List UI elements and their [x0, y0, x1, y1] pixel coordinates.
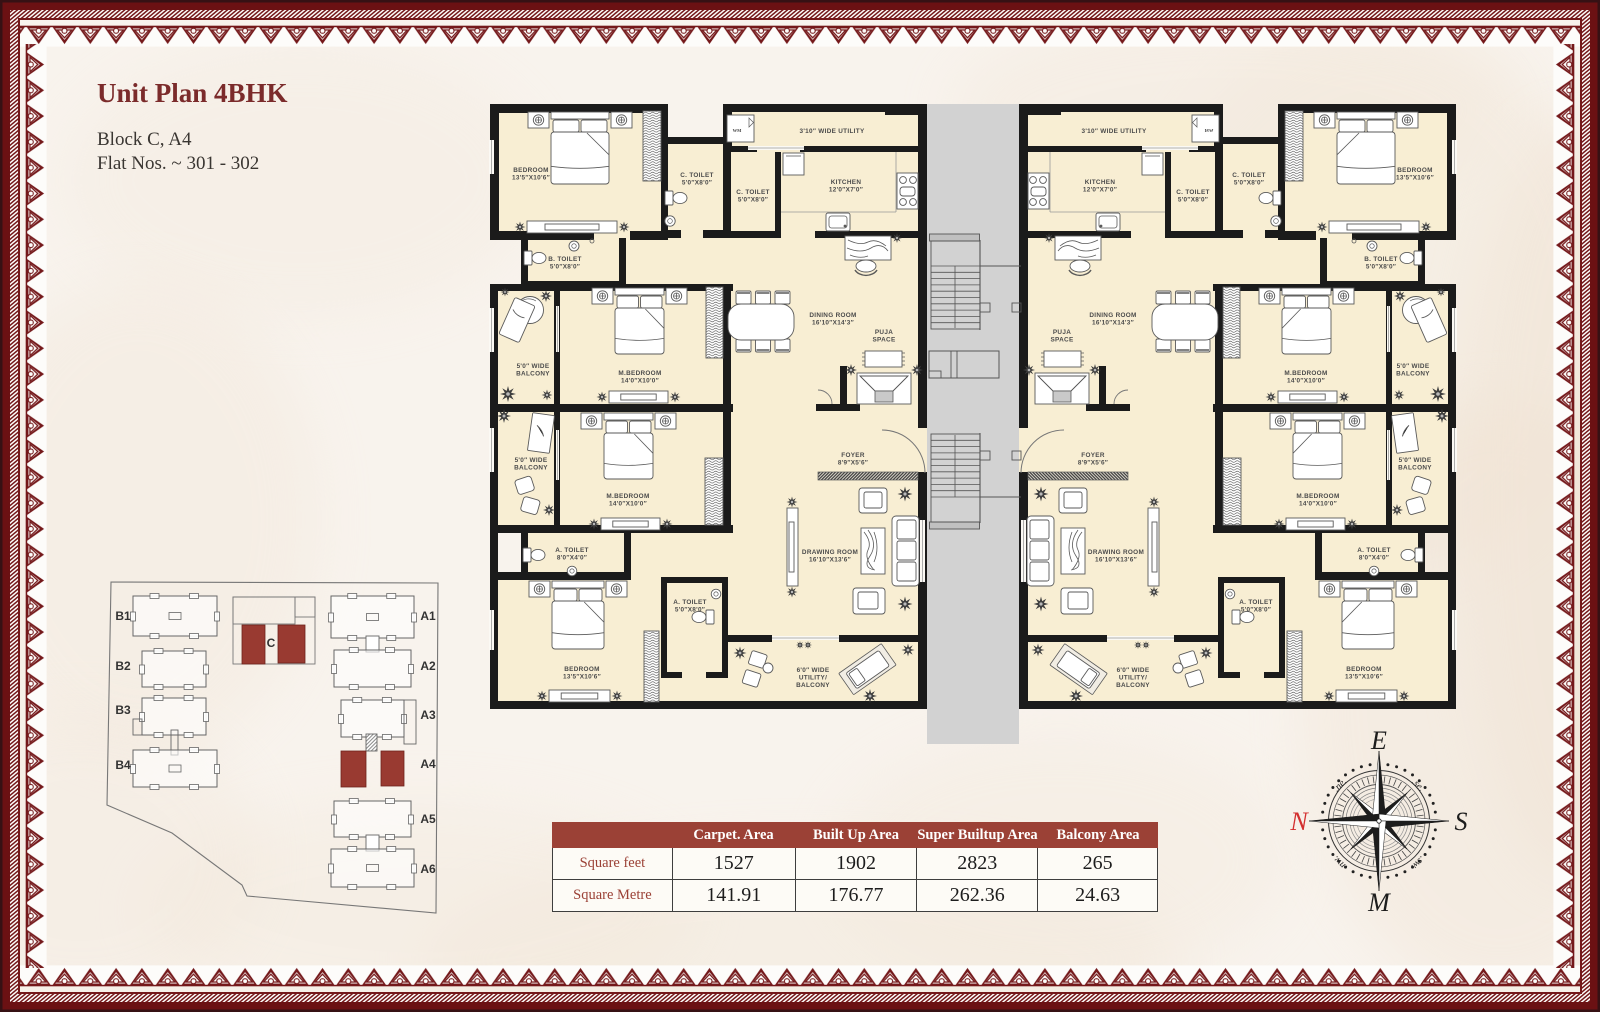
svg-text:14'0″X10'0″: 14'0″X10'0″: [1299, 501, 1337, 508]
svg-text:16'10″X14'3″: 16'10″X14'3″: [1092, 320, 1134, 327]
svg-text:E: E: [1370, 726, 1387, 755]
svg-text:B. TOILET: B. TOILET: [1364, 256, 1397, 263]
svg-text:6'0″ WIDE: 6'0″ WIDE: [797, 667, 830, 674]
svg-text:12'0″X7'0″: 12'0″X7'0″: [829, 187, 863, 194]
svg-text:C. TOILET: C. TOILET: [1176, 189, 1209, 196]
svg-text:5'0″X8'0″: 5'0″X8'0″: [1241, 607, 1271, 614]
svg-text:S: S: [1455, 807, 1468, 836]
svg-text:DINING ROOM: DINING ROOM: [1089, 312, 1136, 319]
svg-text:BEDROOM: BEDROOM: [513, 167, 548, 174]
svg-text:DINING ROOM: DINING ROOM: [809, 312, 856, 319]
svg-text:SPACE: SPACE: [872, 337, 895, 344]
svg-text:UTILITY/: UTILITY/: [1119, 675, 1147, 682]
svg-text:PUJA: PUJA: [875, 329, 893, 336]
svg-text:BALCONY: BALCONY: [516, 371, 550, 378]
svg-text:16'10″X13'6″: 16'10″X13'6″: [809, 557, 851, 564]
svg-text:14'0″X10'0″: 14'0″X10'0″: [609, 501, 647, 508]
svg-text:5'0″X8'0″: 5'0″X8'0″: [1234, 180, 1264, 187]
svg-text:B1: B1: [115, 609, 131, 623]
svg-text:M.BEDROOM: M.BEDROOM: [618, 370, 661, 377]
svg-text:5'0″X8'0″: 5'0″X8'0″: [1366, 264, 1396, 271]
svg-text:KITCHEN: KITCHEN: [831, 179, 862, 186]
svg-text:16'10″X14'3″: 16'10″X14'3″: [812, 320, 854, 327]
svg-text:BALCONY: BALCONY: [1116, 682, 1150, 689]
svg-text:A. TOILET: A. TOILET: [555, 547, 588, 554]
svg-text:13'5″X10'6″: 13'5″X10'6″: [1396, 175, 1434, 182]
svg-text:DRAWING ROOM: DRAWING ROOM: [802, 549, 858, 556]
svg-text:C. TOILET: C. TOILET: [736, 189, 769, 196]
svg-text:C. TOILET: C. TOILET: [680, 172, 713, 179]
svg-text:BEDROOM: BEDROOM: [1397, 167, 1432, 174]
svg-text:M.BEDROOM: M.BEDROOM: [1296, 493, 1339, 500]
svg-text:M.BEDROOM: M.BEDROOM: [1284, 370, 1327, 377]
svg-text:8'9″X5'6″: 8'9″X5'6″: [838, 460, 868, 467]
svg-text:A. TOILET: A. TOILET: [1357, 547, 1390, 554]
svg-text:B3: B3: [115, 703, 131, 717]
svg-text:5'0″X8'0″: 5'0″X8'0″: [738, 197, 768, 204]
svg-text:BALCONY: BALCONY: [1396, 371, 1430, 378]
svg-text:13'5″X10'6″: 13'5″X10'6″: [512, 175, 550, 182]
svg-text:BEDROOM: BEDROOM: [1346, 666, 1381, 673]
svg-text:13'5″X10'6″: 13'5″X10'6″: [563, 674, 601, 681]
svg-text:C: C: [267, 636, 276, 650]
svg-text:A1: A1: [420, 609, 436, 623]
svg-text:14'0″X10'0″: 14'0″X10'0″: [1287, 378, 1325, 385]
svg-text:PUJA: PUJA: [1053, 329, 1071, 336]
svg-text:8'0″X4'0″: 8'0″X4'0″: [1359, 555, 1389, 562]
svg-text:BALCONY: BALCONY: [1398, 465, 1432, 472]
svg-text:A2: A2: [420, 659, 436, 673]
svg-text:WM: WM: [733, 128, 743, 133]
svg-text:A5: A5: [420, 812, 436, 826]
svg-text:8'9″X5'6″: 8'9″X5'6″: [1078, 460, 1108, 467]
svg-text:5'0″X8'0″: 5'0″X8'0″: [1178, 197, 1208, 204]
svg-text:M: M: [1367, 888, 1391, 917]
svg-text:13'5″X10'6″: 13'5″X10'6″: [1345, 674, 1383, 681]
svg-text:SPACE: SPACE: [1050, 337, 1073, 344]
svg-text:5'0″X8'0″: 5'0″X8'0″: [550, 264, 580, 271]
svg-text:5'0″ WIDE: 5'0″ WIDE: [1399, 457, 1432, 464]
svg-text:12'0″X7'0″: 12'0″X7'0″: [1083, 187, 1117, 194]
svg-text:DRAWING ROOM: DRAWING ROOM: [1088, 549, 1144, 556]
svg-text:5'0″ WIDE: 5'0″ WIDE: [1397, 363, 1430, 370]
svg-text:KITCHEN: KITCHEN: [1085, 179, 1116, 186]
svg-text:A4: A4: [420, 757, 436, 771]
svg-text:A. TOILET: A. TOILET: [673, 599, 706, 606]
svg-text:16'10″X13'6″: 16'10″X13'6″: [1095, 557, 1137, 564]
svg-text:5'0″ WIDE: 5'0″ WIDE: [517, 363, 550, 370]
svg-text:A6: A6: [420, 862, 436, 876]
svg-text:UTILITY/: UTILITY/: [799, 675, 827, 682]
svg-text:5'0″ WIDE: 5'0″ WIDE: [515, 457, 548, 464]
svg-text:8'0″X4'0″: 8'0″X4'0″: [557, 555, 587, 562]
svg-text:BALCONY: BALCONY: [796, 682, 830, 689]
svg-text:B4: B4: [115, 758, 131, 772]
svg-text:5'0″X8'0″: 5'0″X8'0″: [675, 607, 705, 614]
svg-text:M.BEDROOM: M.BEDROOM: [606, 493, 649, 500]
svg-text:A3: A3: [420, 708, 436, 722]
svg-text:BEDROOM: BEDROOM: [564, 666, 599, 673]
svg-text:6'0″ WIDE: 6'0″ WIDE: [1117, 667, 1150, 674]
svg-text:BALCONY: BALCONY: [514, 465, 548, 472]
svg-text:FOYER: FOYER: [1081, 452, 1105, 459]
svg-text:14'0″X10'0″: 14'0″X10'0″: [621, 378, 659, 385]
svg-text:5'0″X8'0″: 5'0″X8'0″: [682, 180, 712, 187]
svg-text:B. TOILET: B. TOILET: [548, 256, 581, 263]
svg-text:3'10″ WIDE UTILITY: 3'10″ WIDE UTILITY: [799, 128, 864, 135]
svg-text:N: N: [1289, 807, 1309, 836]
svg-text:A. TOILET: A. TOILET: [1239, 599, 1272, 606]
svg-text:3'10″ WIDE UTILITY: 3'10″ WIDE UTILITY: [1081, 128, 1146, 135]
svg-text:FOYER: FOYER: [841, 452, 865, 459]
svg-text:C. TOILET: C. TOILET: [1232, 172, 1265, 179]
svg-text:B2: B2: [115, 659, 131, 673]
